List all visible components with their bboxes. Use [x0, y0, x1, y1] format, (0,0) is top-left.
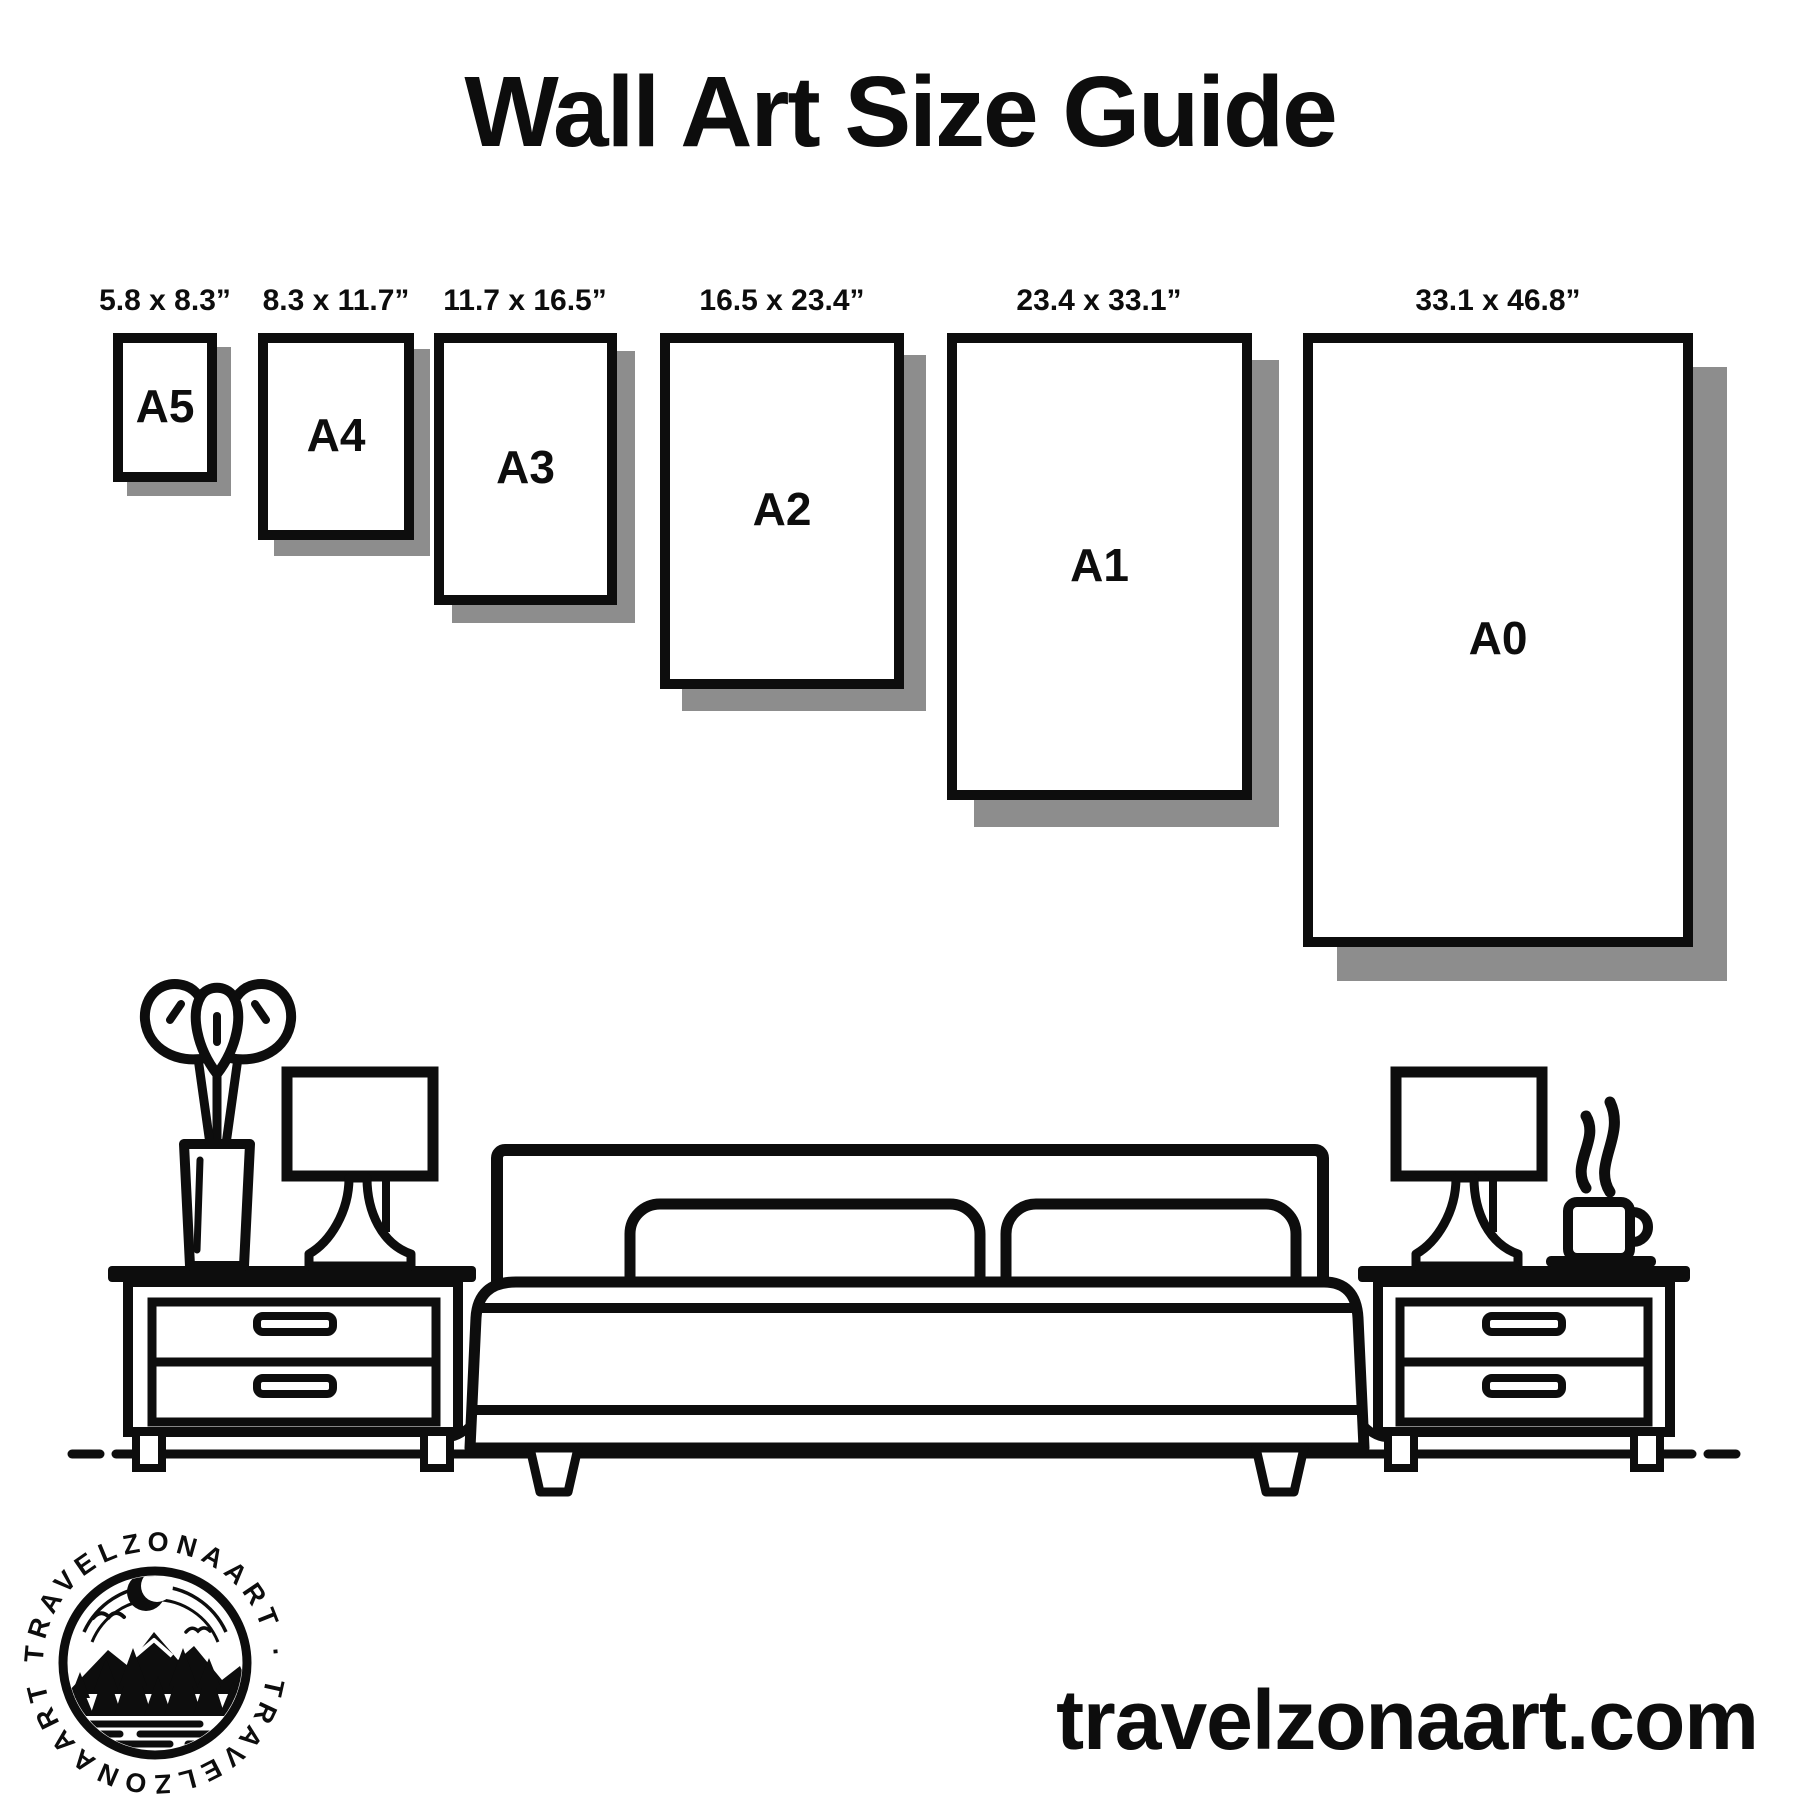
- steam: [1581, 1116, 1590, 1188]
- logo-ring-text: TRAVELZONAART · TRAVELZONAART ·: [0, 0, 291, 1799]
- table-lamp-left-icon: [287, 1072, 433, 1266]
- drawer-handle: [257, 1316, 333, 1332]
- size-guide-poster: Wall Art Size Guide 5.8 x 8.3” 8.3 x 11.…: [0, 0, 1800, 1800]
- nightstand-leg: [1634, 1432, 1660, 1468]
- drawer-handle: [1486, 1316, 1562, 1332]
- mug-tray: [1546, 1256, 1656, 1267]
- logo-badge: TRAVELZONAART · TRAVELZONAART ·: [0, 0, 291, 1799]
- bed-icon: [436, 1150, 1398, 1492]
- plant-icon: [145, 984, 291, 1266]
- bedroom-illustration: TRAVELZONAART · TRAVELZONAART ·: [0, 0, 1800, 1800]
- drawer-handle: [1486, 1378, 1562, 1394]
- website-url: travelzonaart.com: [1056, 1672, 1758, 1769]
- coffee-mug-icon: [1546, 1102, 1656, 1267]
- steam: [1605, 1102, 1615, 1192]
- nightstand-left: [108, 1266, 476, 1468]
- nightstand-leg: [424, 1432, 450, 1468]
- bed-leg-left: [530, 1448, 578, 1492]
- nightstand-leg: [136, 1432, 162, 1468]
- nightstand-right: [1358, 1266, 1690, 1468]
- bed-leg-right: [1256, 1448, 1304, 1492]
- table-lamp-right-icon: [1396, 1072, 1542, 1266]
- drawer-handle: [257, 1378, 333, 1394]
- mug-body: [1568, 1202, 1630, 1258]
- nightstand-leg: [1388, 1432, 1414, 1468]
